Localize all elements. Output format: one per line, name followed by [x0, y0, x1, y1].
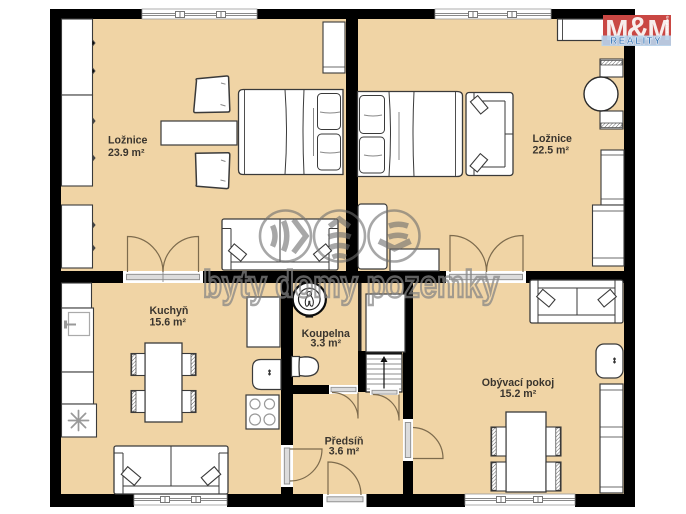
svg-text:Obývací pokoj: Obývací pokoj [482, 377, 554, 389]
svg-text:Ložnice: Ložnice [533, 133, 573, 145]
svg-text:HOLDING: HOLDING [666, 15, 670, 33]
svg-text:Kuchyň: Kuchyň [150, 305, 189, 317]
svg-text:byty domy pozemky: byty domy pozemky [203, 264, 499, 306]
svg-text:23.9 m²: 23.9 m² [108, 147, 145, 159]
svg-text:3.6 m²: 3.6 m² [329, 446, 360, 458]
svg-text:Ložnice: Ložnice [108, 135, 148, 147]
svg-text:22.5 m²: 22.5 m² [533, 145, 570, 157]
svg-text:15.6 m²: 15.6 m² [150, 317, 187, 329]
svg-text:15.2 m²: 15.2 m² [500, 388, 537, 400]
svg-text:3.3 m²: 3.3 m² [310, 338, 341, 350]
svg-text:REALITY: REALITY [610, 36, 662, 47]
